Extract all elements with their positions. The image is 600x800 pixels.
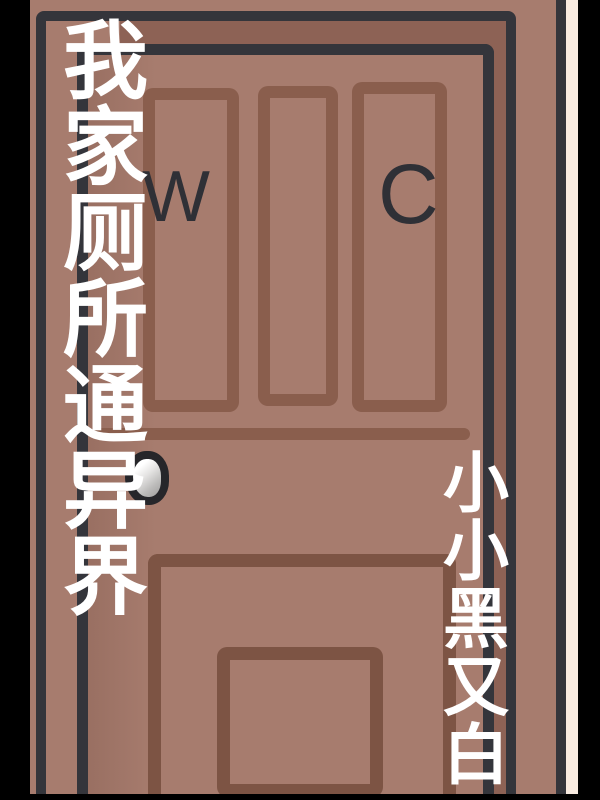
book-cover: W C 我家厕所通异界 小小黑又白: [0, 0, 600, 800]
wall-strip: [566, 0, 578, 794]
door-panel-bottom-inner-square: [217, 647, 383, 797]
door-groove: [93, 428, 470, 440]
bottom-black-bar: [0, 794, 600, 800]
door-panel-left: [143, 88, 239, 412]
door-panel-right: [352, 82, 447, 412]
door-panel-middle: [258, 86, 338, 406]
author-name: 小小黑又白: [438, 448, 504, 788]
book-title: 我家厕所通异界: [55, 16, 140, 618]
wc-sign-letter-c: C: [378, 152, 439, 236]
wc-sign-letter-w: W: [142, 161, 210, 233]
